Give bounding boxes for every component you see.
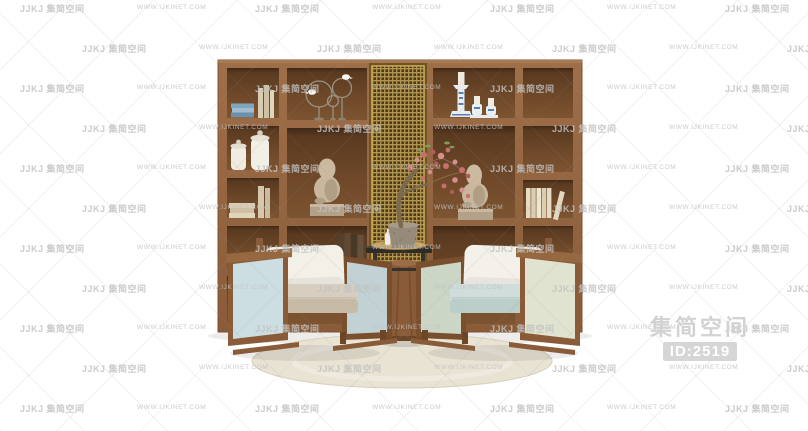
brand-name: 集简空间 <box>650 316 750 340</box>
product-screenshot: JJKJ 集简空间WWW.IJKINET.COMJJKJ 集简空间WWW.IJK… <box>0 0 808 431</box>
brand-badge: 集简空间 ID:2519 <box>650 316 750 361</box>
brand-id-label: ID:2519 <box>663 342 737 361</box>
furniture-scene <box>0 0 808 431</box>
